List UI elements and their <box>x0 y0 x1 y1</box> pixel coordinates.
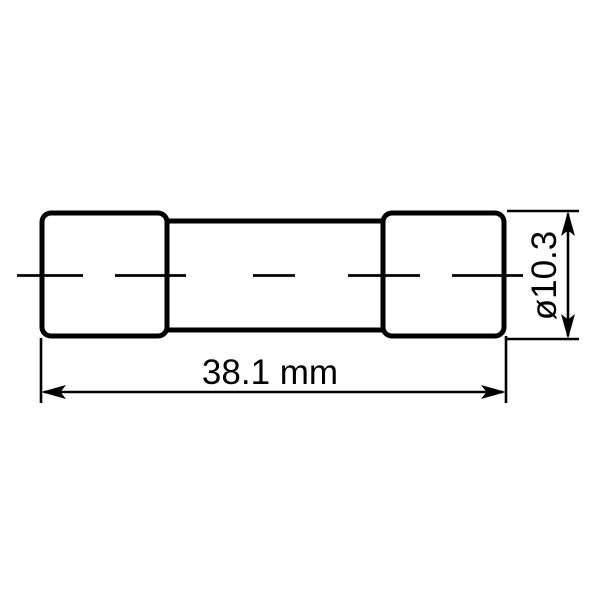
drawing-canvas: 38.1 mm ø10.3 <box>0 0 600 600</box>
diameter-dimension-label: ø10.3 <box>525 231 564 321</box>
length-dimension-label: 38.1 mm <box>202 353 338 392</box>
length-dimension: 38.1 mm <box>41 336 506 403</box>
fuse-technical-drawing: 38.1 mm ø10.3 <box>0 0 600 600</box>
